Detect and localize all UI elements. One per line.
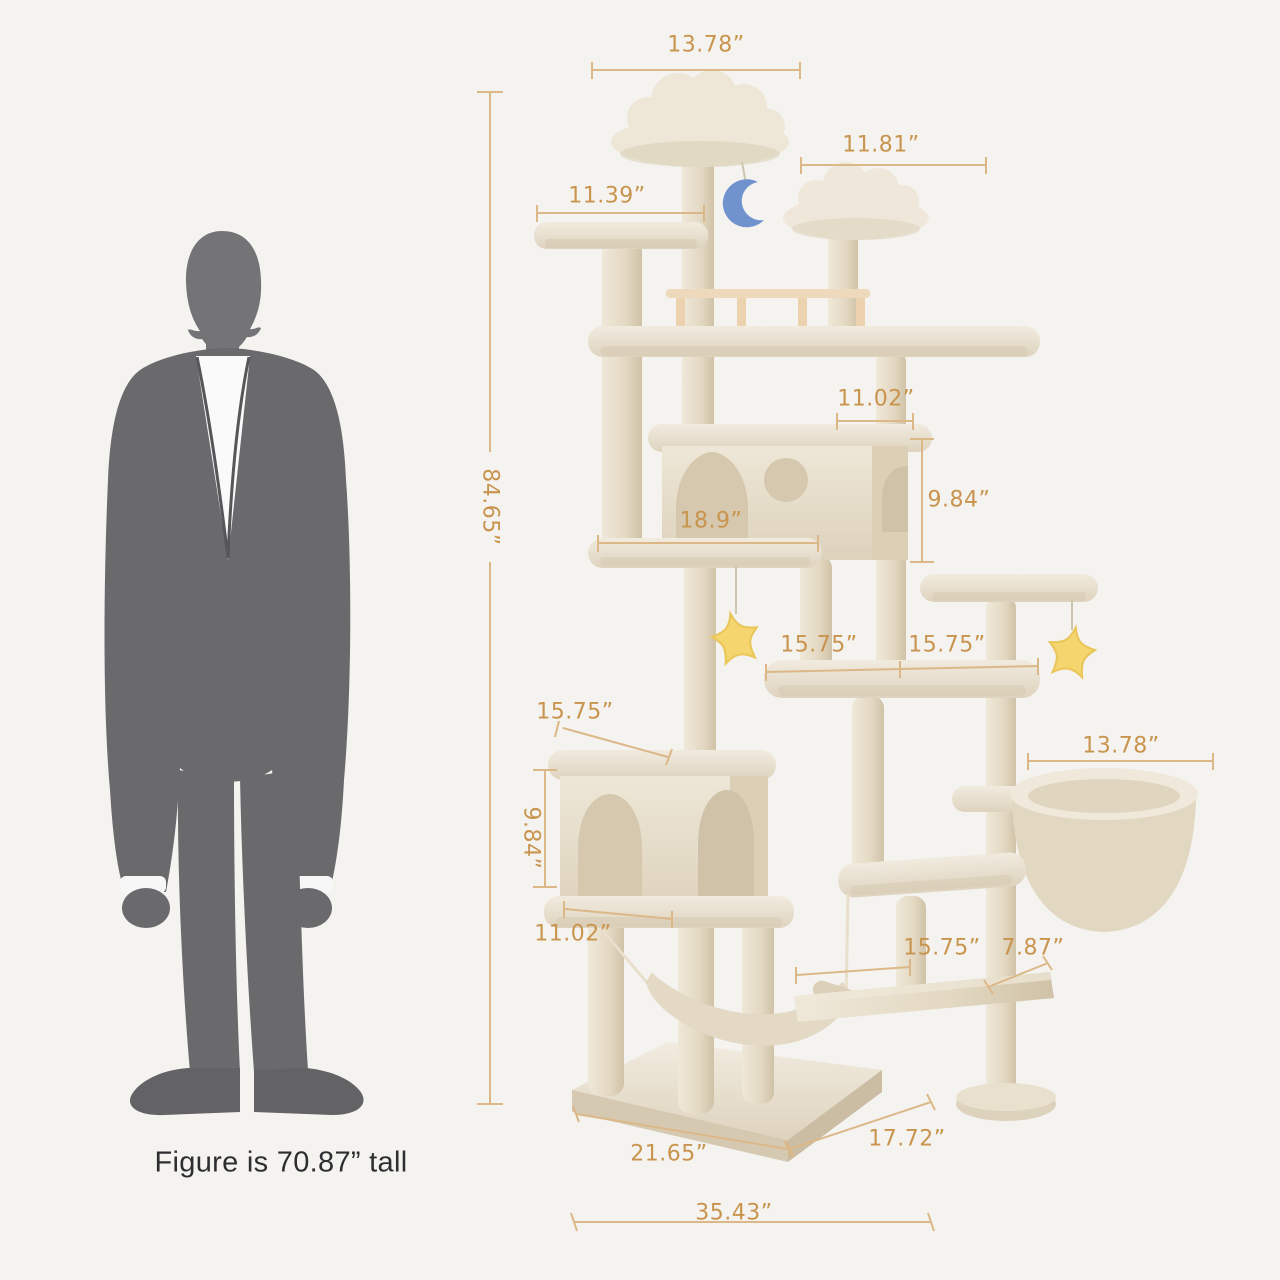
dim-middle-platform-right-width: 15.75” (908, 633, 985, 658)
dim-base-width: 21.65” (630, 1142, 707, 1167)
lower-condo-arch-right (698, 790, 754, 908)
human-figure (105, 231, 364, 1115)
dim-right-perch-width: 11.81” (842, 133, 919, 158)
dim-bottom-platform-length: 15.75” (903, 936, 980, 961)
dim-upper-condo-platform-width: 18.9” (680, 509, 743, 534)
upper-left-platform (534, 222, 708, 249)
human-shoe-left (130, 1068, 240, 1115)
fence-platform (588, 326, 1040, 357)
cat-tree (534, 70, 1198, 1162)
dim-bottom-platform-depth: 7.87” (1002, 936, 1065, 961)
star-toy-left (708, 566, 763, 665)
dim-lower-condo-height: 9.84” (519, 807, 544, 870)
dim-overall-width: 35.43” (695, 1201, 772, 1226)
dim-top-perch-width: 13.78” (667, 33, 744, 58)
top-right-platform (920, 574, 1098, 602)
lower-condo (544, 750, 794, 928)
human-hand-left (122, 888, 170, 928)
round-foot (956, 1083, 1056, 1121)
top-cloud-perch (611, 70, 789, 167)
middle-platform (764, 660, 1040, 698)
dim-hanging-basket-width: 13.78” (1082, 734, 1159, 759)
dim-middle-platform-left-width: 15.75” (780, 633, 857, 658)
moon-toy (723, 162, 764, 227)
star-toy-right (1045, 600, 1099, 679)
product-dimension-diagram: 13.78” 11.81” 11.39” 84.65” 11.02” 9.84”… (0, 0, 1280, 1280)
dim-upper-condo-depth: 11.02” (837, 387, 914, 412)
figure-height-caption: Figure is 70.87” tall (155, 1147, 408, 1180)
right-cloud-perch (783, 162, 929, 240)
dim-upper-condo-height: 9.84” (928, 488, 991, 513)
dim-overall-height: 84.65” (478, 468, 503, 545)
dim-lower-condo-bottom-width: 11.02” (534, 922, 611, 947)
human-leg-left (178, 770, 240, 1072)
human-shoe-right (254, 1068, 364, 1115)
dim-upper-left-platform-width: 11.39” (568, 184, 645, 209)
dim-lower-condo-top-width: 15.75” (536, 700, 613, 725)
dim-base-depth: 17.72” (868, 1127, 945, 1152)
upper-condo-peek-hole (764, 458, 808, 502)
lower-condo-arch-left (578, 794, 642, 912)
